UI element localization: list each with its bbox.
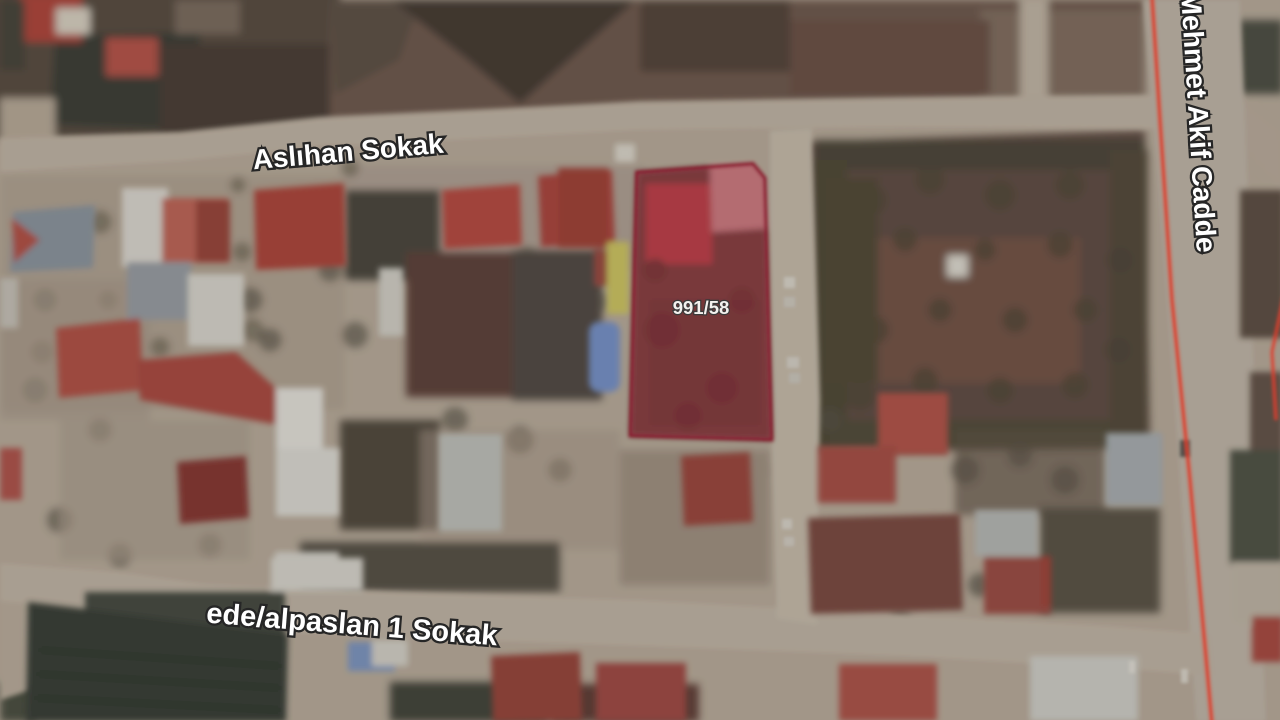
svg-text:991/58: 991/58 xyxy=(673,297,730,318)
